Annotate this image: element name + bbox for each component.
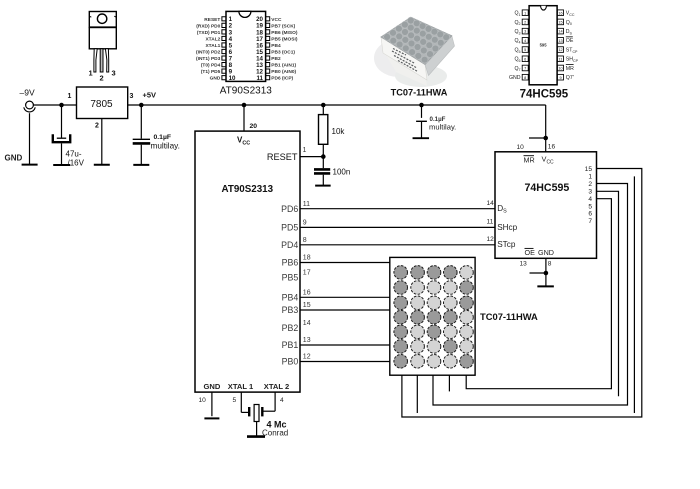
svg-text:2: 2 [524, 21, 526, 25]
svg-text:17: 17 [303, 270, 311, 277]
svg-text:74HC595: 74HC595 [520, 89, 569, 101]
svg-text:PB5 (MOSI): PB5 (MOSI) [271, 36, 298, 42]
svg-text:9: 9 [559, 76, 561, 80]
svg-text:GND: GND [203, 382, 220, 391]
svg-text:multilay.: multilay. [429, 123, 456, 132]
svg-text:10k: 10k [332, 127, 346, 136]
svg-text:XTAL 2: XTAL 2 [264, 382, 289, 391]
svg-text:+5V: +5V [143, 91, 157, 100]
svg-text:(INT0) PD2: (INT0) PD2 [196, 50, 221, 56]
svg-text:PB6 (MISO): PB6 (MISO) [271, 30, 298, 36]
svg-text:XTAL2: XTAL2 [205, 36, 220, 42]
svg-text:12: 12 [558, 48, 562, 52]
svg-text:8: 8 [524, 76, 526, 80]
svg-text:5: 5 [524, 48, 526, 52]
svg-text:PB0 (AIN0): PB0 (AIN0) [271, 69, 296, 75]
svg-text:Q7': Q7' [566, 75, 574, 81]
svg-text:8: 8 [548, 261, 552, 268]
svg-text:GND: GND [538, 248, 554, 257]
svg-text:MR: MR [566, 66, 574, 72]
svg-text:PB0: PB0 [282, 357, 299, 367]
svg-text:2: 2 [588, 181, 592, 188]
svg-text:2: 2 [95, 123, 99, 130]
svg-text:AT90S2313: AT90S2313 [220, 85, 273, 96]
svg-text:TC07-11HWA: TC07-11HWA [480, 311, 538, 322]
svg-text:VCC: VCC [271, 17, 282, 23]
svg-text:5: 5 [233, 397, 237, 404]
svg-text:multilay.: multilay. [151, 142, 180, 151]
svg-text:8: 8 [303, 237, 307, 244]
svg-text:PB6: PB6 [282, 258, 299, 268]
svg-text:PB2: PB2 [271, 56, 281, 62]
svg-text:RESET: RESET [267, 152, 298, 162]
svg-text:OE: OE [566, 38, 574, 44]
svg-text:(TXD) PD1: (TXD) PD1 [197, 30, 221, 36]
svg-text:STcp: STcp [497, 240, 516, 249]
svg-text:12: 12 [487, 236, 495, 243]
svg-text:100n: 100n [333, 168, 351, 177]
svg-text:PB7 (SCK): PB7 (SCK) [271, 23, 295, 29]
svg-text:7: 7 [524, 67, 526, 71]
svg-text:PD6: PD6 [281, 204, 298, 214]
svg-text:16: 16 [558, 11, 562, 15]
svg-text:14: 14 [303, 320, 311, 327]
svg-text:12: 12 [303, 354, 311, 361]
svg-text:595: 595 [540, 43, 548, 48]
svg-text:(INT1) PD3: (INT1) PD3 [196, 56, 221, 62]
svg-text:3: 3 [112, 69, 116, 78]
svg-text:11: 11 [487, 219, 494, 226]
svg-text:GND: GND [509, 75, 521, 81]
svg-text:5: 5 [588, 203, 592, 210]
svg-text:1: 1 [303, 147, 307, 154]
svg-text:–9V: –9V [20, 88, 35, 98]
svg-text:11: 11 [559, 57, 563, 61]
svg-text:OE: OE [525, 248, 536, 257]
svg-text:7805: 7805 [90, 99, 113, 110]
svg-text:47u-: 47u- [66, 150, 82, 159]
svg-text:PB5: PB5 [282, 273, 299, 283]
svg-text:1: 1 [524, 11, 526, 15]
svg-text:PD4: PD4 [281, 240, 298, 250]
svg-text:11: 11 [303, 201, 310, 208]
svg-text:13: 13 [558, 39, 562, 43]
svg-text:10: 10 [517, 144, 525, 151]
svg-text:PB1: PB1 [282, 340, 299, 350]
svg-text:MR: MR [524, 156, 535, 165]
svg-text:PB3: PB3 [282, 305, 299, 315]
svg-text:2: 2 [100, 74, 104, 83]
svg-text:6: 6 [524, 57, 526, 61]
svg-text:0.1µF: 0.1µF [154, 134, 172, 141]
svg-text:(RXD) PD0: (RXD) PD0 [196, 23, 220, 29]
svg-text:14: 14 [487, 200, 495, 207]
svg-text:PB4: PB4 [271, 43, 281, 49]
svg-text:3: 3 [588, 189, 592, 196]
svg-text:TC07-11HWA: TC07-11HWA [391, 88, 448, 98]
svg-text:(T0) PD4: (T0) PD4 [201, 63, 221, 69]
svg-text:4: 4 [588, 196, 592, 203]
svg-text:4: 4 [280, 397, 284, 404]
svg-text:16: 16 [548, 144, 556, 151]
svg-text:/16V: /16V [68, 159, 85, 168]
svg-text:PB3 (OC1): PB3 (OC1) [271, 50, 295, 56]
svg-text:PD5: PD5 [281, 223, 298, 233]
svg-text:PB4: PB4 [282, 293, 299, 303]
svg-text:7: 7 [588, 218, 592, 225]
svg-text:AT90S2313: AT90S2313 [222, 184, 274, 195]
svg-text:PB1 (AIN1): PB1 (AIN1) [271, 63, 296, 69]
svg-text:20: 20 [250, 123, 258, 130]
svg-text:4: 4 [524, 39, 526, 43]
svg-text:10: 10 [229, 75, 236, 82]
svg-text:GND: GND [210, 76, 221, 82]
svg-text:PB2: PB2 [282, 323, 299, 333]
svg-text:SHcp: SHcp [497, 223, 517, 232]
svg-text:15: 15 [303, 302, 311, 309]
svg-text:PD6 (ICP): PD6 (ICP) [271, 76, 293, 82]
svg-text:(T1) PD5: (T1) PD5 [201, 69, 221, 75]
svg-text:1: 1 [89, 69, 93, 78]
svg-text:GND: GND [5, 154, 23, 163]
svg-text:9: 9 [303, 220, 307, 227]
svg-text:14: 14 [558, 30, 562, 34]
svg-text:74HC595: 74HC595 [525, 182, 570, 194]
svg-text:XTAL1: XTAL1 [205, 43, 220, 49]
svg-text:1: 1 [68, 93, 72, 100]
svg-text:Conrad: Conrad [262, 429, 288, 438]
svg-text:13: 13 [520, 261, 528, 268]
svg-text:18: 18 [303, 255, 311, 262]
svg-text:13: 13 [303, 337, 311, 344]
svg-text:RESET: RESET [204, 17, 220, 23]
svg-text:10: 10 [558, 67, 562, 71]
svg-text:15: 15 [585, 166, 593, 173]
svg-text:XTAL 1: XTAL 1 [228, 382, 254, 391]
svg-text:3: 3 [524, 30, 526, 34]
svg-text:11: 11 [256, 75, 263, 82]
svg-text:16: 16 [303, 290, 311, 297]
svg-text:10: 10 [199, 397, 207, 404]
svg-text:1: 1 [588, 174, 592, 181]
svg-text:15: 15 [558, 21, 562, 25]
svg-text:3: 3 [130, 93, 134, 100]
svg-text:6: 6 [588, 211, 592, 218]
